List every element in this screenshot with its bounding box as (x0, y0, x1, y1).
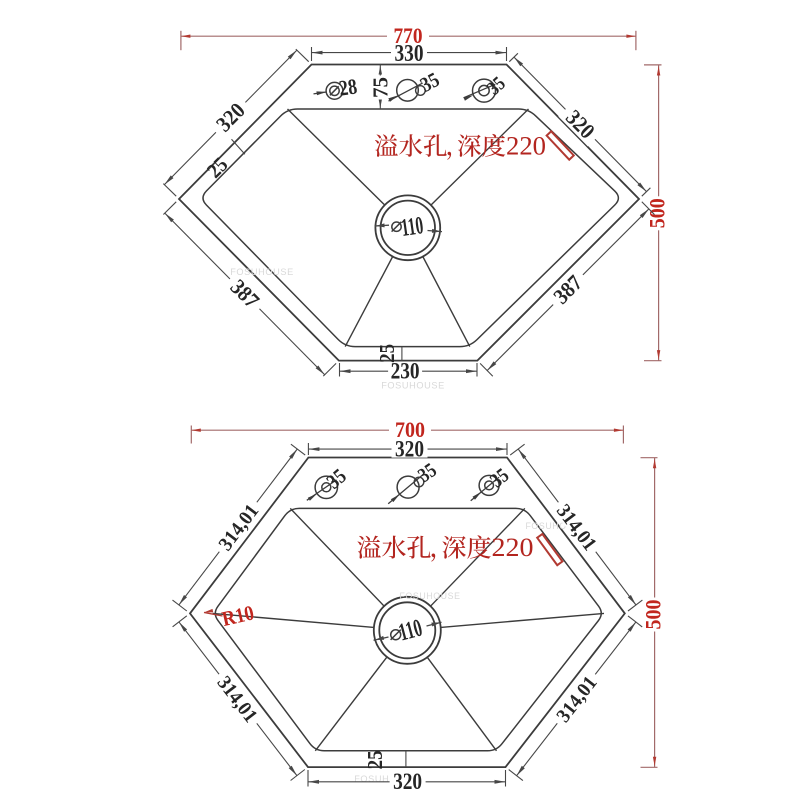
svg-text:25: 25 (363, 750, 387, 769)
svg-text:320: 320 (395, 436, 424, 461)
svg-text:500: 500 (645, 198, 670, 228)
svg-text:320: 320 (393, 769, 422, 794)
svg-text:FOSUHOUSE: FOSUHOUSE (230, 267, 294, 277)
svg-text:500: 500 (641, 600, 666, 630)
svg-text:28: 28 (337, 73, 358, 100)
svg-text:110: 110 (399, 212, 425, 242)
svg-text:75: 75 (368, 77, 392, 98)
svg-text:FOSUHOUSE: FOSUHOUSE (399, 591, 460, 601)
svg-text:220: 220 (492, 533, 534, 562)
svg-text:220: 220 (506, 131, 546, 160)
svg-text:330: 330 (395, 41, 424, 67)
svg-text:FOSUHOUSE: FOSUHOUSE (381, 381, 445, 391)
